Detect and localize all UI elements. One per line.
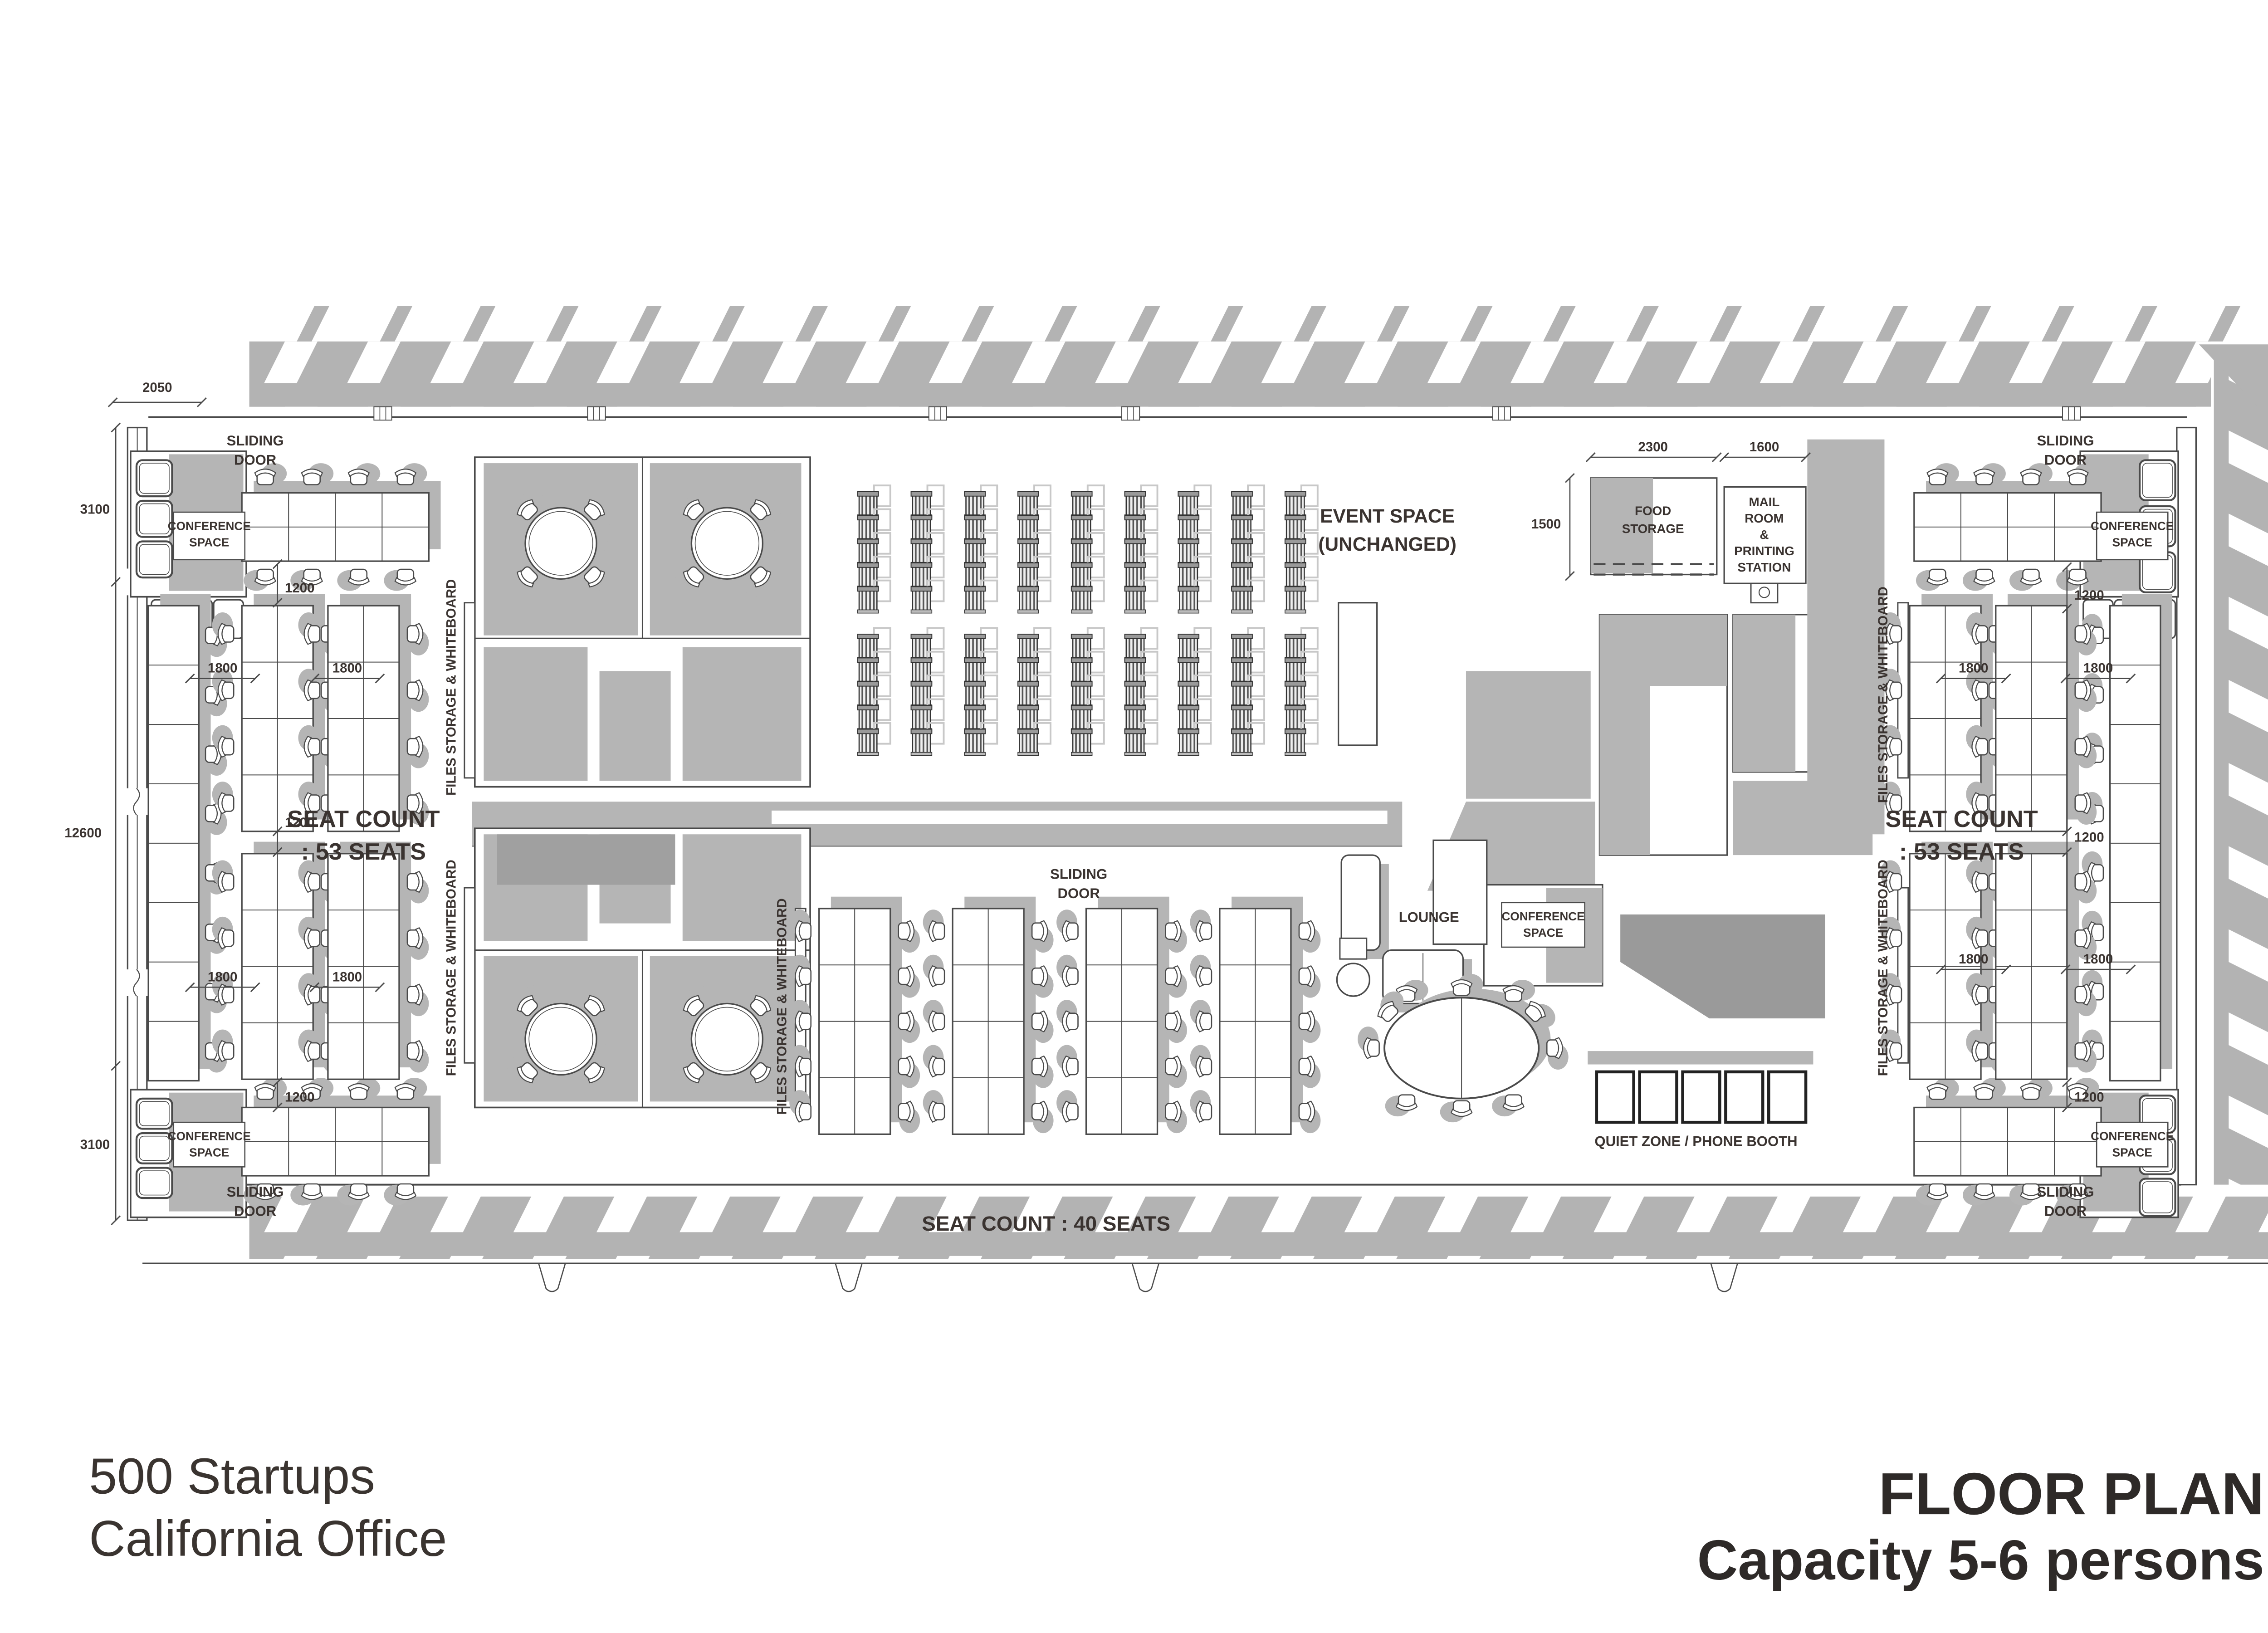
label-seat-count-53: : 53 SEATS — [1899, 839, 2024, 865]
task-chair-icon — [1299, 1056, 1320, 1088]
mullion-spike — [1543, 306, 1576, 342]
mullion-spike — [879, 306, 911, 342]
whiteboard-strip — [464, 603, 475, 778]
dim-1200: 1200 — [2074, 830, 2104, 845]
mullion-spike — [1959, 306, 1991, 342]
booth-counter — [1588, 1051, 1813, 1064]
task-chair-icon — [1166, 1056, 1187, 1088]
task-chair-icon — [1492, 1095, 1524, 1116]
mullion-spike — [1377, 306, 1410, 342]
task-chair-icon — [407, 624, 429, 655]
task-chair-icon — [899, 1101, 920, 1133]
task-chair-icon — [1358, 1027, 1379, 1058]
counter — [497, 834, 675, 885]
label-mail-room: & — [1760, 528, 1769, 542]
task-chair-icon — [1299, 966, 1320, 997]
label-files-storage: FILES STORAGE & WHITEBOARD — [444, 860, 459, 1076]
mullion-spike — [463, 306, 496, 342]
cabinet-chair — [137, 541, 172, 577]
door-notch-top — [374, 407, 391, 420]
label-event-space: EVENT SPACE — [1320, 505, 1455, 527]
whiteboard-strip — [464, 888, 475, 1063]
task-chair-icon — [407, 984, 429, 1016]
label-mail-room: STATION — [1738, 560, 1791, 574]
task-chair-icon — [1547, 1038, 1568, 1070]
cabinet-chair — [137, 1099, 172, 1129]
core-corridor — [1807, 440, 1884, 835]
cabinet-chair — [2140, 1179, 2175, 1216]
label-seat-count-53: SEAT COUNT — [1885, 806, 2038, 832]
mullion-spike — [1128, 306, 1160, 342]
mullion-spike — [629, 306, 662, 342]
phone-booth — [1683, 1072, 1720, 1122]
dim-1800: 1800 — [332, 661, 362, 676]
hatch-band-bottom — [249, 1197, 2268, 1259]
mullion-spike — [2125, 306, 2157, 342]
label-mail-room: MAIL — [1749, 495, 1780, 509]
task-chair-icon — [1056, 1000, 1078, 1032]
mullion-spike — [1211, 306, 1243, 342]
task-chair-icon — [899, 921, 920, 953]
mullion-spike — [1626, 306, 1659, 342]
cabinet-chair — [137, 501, 172, 537]
label-food-storage: STORAGE — [1622, 522, 1684, 536]
dim-2300: 2300 — [1638, 440, 1667, 455]
mullion-spike — [962, 306, 994, 342]
cabinet-chair — [137, 460, 172, 497]
stair-core — [1620, 914, 1825, 1018]
task-chair-icon — [1916, 569, 1948, 591]
label-sliding-door: SLIDINGDOOR — [2037, 433, 2094, 468]
task-chair-icon — [1299, 921, 1320, 953]
label-sliding-door: SLIDINGDOOR — [1050, 866, 1107, 901]
dim-1600: 1600 — [1750, 440, 1779, 455]
door-notch-bottom — [538, 1263, 565, 1291]
lounge-table — [1433, 840, 1487, 944]
label-sliding-door: SLIDINGDOOR — [227, 433, 284, 468]
door-notch-top — [2063, 407, 2080, 420]
dim-1800: 1800 — [332, 969, 362, 984]
task-chair-icon — [1299, 1011, 1320, 1043]
door-notch-bottom — [1711, 1263, 1738, 1291]
title-block: 500 Startups California Office FLOOR PLA… — [89, 1447, 2264, 1592]
task-chair-icon — [1056, 1090, 1078, 1122]
right-wall — [2177, 428, 2196, 1185]
task-chair-icon — [1963, 569, 1994, 591]
task-chair-icon — [1032, 1101, 1053, 1133]
task-chair-icon — [923, 1045, 944, 1077]
dim-3100: 3100 — [80, 1137, 110, 1152]
dim-1800: 1800 — [1959, 952, 1988, 967]
task-chair-icon — [395, 463, 427, 484]
task-chair-icon — [395, 1078, 427, 1099]
label-seat-count-53: : 53 SEATS — [301, 839, 426, 865]
task-chair-icon — [2009, 569, 2041, 591]
phone-booth — [1640, 1072, 1677, 1122]
task-chair-icon — [1190, 1000, 1212, 1032]
task-chair-icon — [1190, 909, 1212, 941]
task-chair-icon — [1927, 1078, 1959, 1099]
lounge-sofa — [1341, 855, 1380, 950]
task-chair-icon — [407, 736, 429, 768]
dim-1200: 1200 — [2074, 1090, 2104, 1105]
task-chair-icon — [407, 871, 429, 903]
task-chair-icon — [2021, 1078, 2053, 1099]
task-chair-icon — [337, 569, 369, 591]
task-chair-icon — [899, 1056, 920, 1088]
task-chair-icon — [1974, 1078, 2006, 1099]
podium — [1339, 603, 1377, 745]
task-chair-icon — [923, 1090, 944, 1122]
door-notch-bottom — [1132, 1263, 1159, 1291]
task-chair-icon — [923, 955, 944, 987]
mullion-spike — [546, 306, 579, 342]
door-notch-top — [1493, 407, 1510, 420]
sheet-title: FLOOR PLAN — [1879, 1461, 2264, 1527]
dim-1500: 1500 — [1531, 517, 1561, 532]
mullion-spike — [712, 306, 745, 342]
floor-plan-canvas: SLIDINGDOORSLIDINGDOORSLIDINGDOORSLIDING… — [0, 0, 2268, 1633]
task-chair-icon — [302, 463, 333, 484]
task-chair-icon — [1385, 1095, 1417, 1116]
label-quiet-zone: QUIET ZONE / PHONE BOOTH — [1594, 1134, 1797, 1149]
task-chair-icon — [384, 569, 415, 591]
task-chair-icon — [1166, 921, 1187, 953]
door-notch-top — [929, 407, 947, 420]
task-chair-icon — [1299, 1101, 1320, 1133]
dim-1800: 1800 — [2083, 952, 2113, 967]
mullion-spike — [1460, 306, 1493, 342]
round-table — [525, 1003, 596, 1075]
hatch-band-top — [249, 342, 2211, 407]
mullion-spike — [2042, 306, 2074, 342]
dim-1200: 1200 — [285, 815, 314, 830]
round-table — [691, 1003, 763, 1075]
label-seat-count-40: SEAT COUNT : 40 SEATS — [922, 1212, 1170, 1235]
dim-1200: 1200 — [2074, 588, 2104, 603]
mullion-spike — [795, 306, 828, 342]
door-notch-top — [1122, 407, 1139, 420]
dim-1800: 1800 — [208, 661, 237, 676]
dim-1200: 1200 — [285, 1090, 314, 1105]
task-chair-icon — [1927, 463, 1959, 484]
door-notch-top — [587, 407, 605, 420]
window-gap — [125, 969, 150, 996]
label-files-storage: FILES STORAGE & WHITEBOARD — [444, 579, 459, 796]
task-chair-icon — [407, 1041, 429, 1072]
dim-1200: 1200 — [285, 581, 314, 596]
task-chair-icon — [1056, 955, 1078, 987]
dim-1800: 1800 — [208, 969, 237, 984]
floor-plan-sheet: SLIDINGDOORSLIDINGDOORSLIDINGDOORSLIDING… — [0, 0, 2268, 1633]
dim-2050: 2050 — [142, 380, 172, 395]
dim-1800: 1800 — [1959, 661, 1988, 676]
mullion-spike — [1045, 306, 1077, 342]
dim-3100: 3100 — [80, 502, 110, 517]
task-chair-icon — [899, 1011, 920, 1043]
phone-booth — [1597, 1072, 1634, 1122]
task-chair-icon — [348, 1078, 380, 1099]
task-chair-icon — [1190, 955, 1212, 987]
task-chair-icon — [1032, 966, 1053, 997]
mullion-spike — [1876, 306, 1908, 342]
door-notch-bottom — [836, 1263, 862, 1291]
phone-booth — [1725, 1072, 1763, 1122]
task-chair-icon — [1166, 1011, 1187, 1043]
hatch-band-right — [2214, 350, 2268, 1184]
printer-icon — [1751, 583, 1778, 603]
label-files-storage: FILES STORAGE & WHITEBOARD — [1876, 860, 1891, 1076]
task-chair-icon — [789, 1090, 811, 1122]
label-mail-room: ROOM — [1745, 511, 1784, 525]
task-chair-icon — [1166, 1101, 1187, 1133]
window-gap — [125, 788, 150, 815]
mullion-spike — [1709, 306, 1742, 342]
task-chair-icon — [923, 909, 944, 941]
label-files-storage: FILES STORAGE & WHITEBOARD — [1876, 587, 1891, 803]
task-chair-icon — [1032, 1011, 1053, 1043]
project-title-line1: 500 Startups — [89, 1447, 375, 1504]
project-title-line2: California Office — [89, 1510, 447, 1567]
dim-1800: 1800 — [2083, 661, 2113, 676]
task-chair-icon — [1440, 1101, 1472, 1122]
task-chair-icon — [1032, 921, 1053, 953]
task-chair-icon — [407, 680, 429, 712]
task-chair-icon — [899, 966, 920, 997]
phone-booth — [1769, 1072, 1806, 1122]
label-mail-room: PRINTING — [1734, 544, 1794, 558]
cabinet-chair — [2140, 460, 2175, 500]
dim-12600: 12600 — [64, 826, 102, 841]
task-chair-icon — [1190, 1090, 1212, 1122]
task-chair-icon — [244, 569, 275, 591]
cabinet-chair — [137, 1133, 172, 1164]
task-chair-icon — [1166, 966, 1187, 997]
mullion-spike — [297, 306, 329, 342]
cabinet-chair — [137, 1168, 172, 1198]
round-table — [691, 508, 763, 579]
task-chair-icon — [1056, 1045, 1078, 1077]
task-chair-icon — [1056, 909, 1078, 941]
mullion-spike — [1294, 306, 1326, 342]
task-chair-icon — [1190, 1045, 1212, 1077]
task-chair-icon — [255, 1078, 287, 1099]
task-chair-icon — [1032, 1056, 1053, 1088]
task-chair-icon — [348, 463, 380, 484]
speaker-icon — [1337, 963, 1369, 996]
label-food-storage: FOOD — [1635, 504, 1671, 518]
label-lounge: LOUNGE — [1399, 909, 1459, 925]
task-chair-icon — [407, 928, 429, 959]
mullion-spike — [1793, 306, 1825, 342]
label-files-storage: FILES STORAGE & WHITEBOARD — [775, 898, 790, 1115]
mullion-spike — [380, 306, 412, 342]
task-chair-icon — [923, 1000, 944, 1032]
round-table — [525, 508, 596, 579]
sheet-subtitle: Capacity 5-6 persons — [1697, 1529, 2264, 1592]
task-chair-icon — [1974, 463, 2006, 484]
mullion-spike — [2208, 306, 2241, 342]
label-event-space: (UNCHANGED) — [1318, 533, 1457, 555]
